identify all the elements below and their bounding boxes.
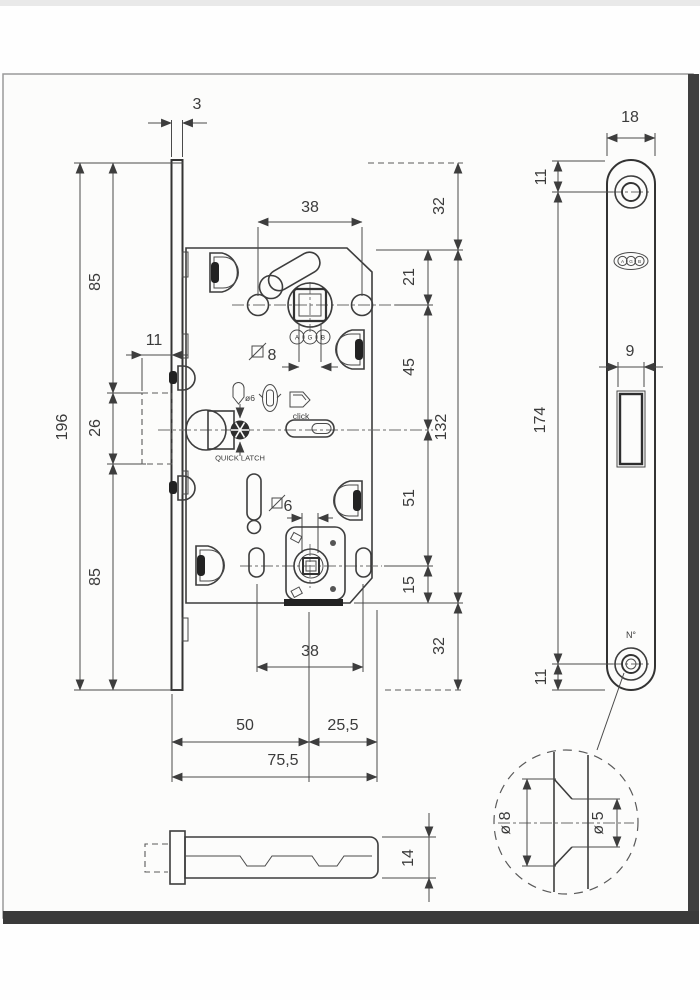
dim-label-38-top: 38	[301, 199, 319, 216]
dim-label-38-bottom: 38	[301, 643, 319, 660]
detail-circle	[494, 750, 638, 894]
dim-label-square6: 6	[284, 498, 293, 515]
scan-shadow-right	[688, 74, 699, 920]
faceplate-side	[607, 160, 655, 690]
dim-label-15: 15	[401, 576, 418, 594]
dim-label-26: 26	[87, 419, 104, 437]
dim-label-45: 45	[401, 358, 418, 376]
dim-label-50: 50	[236, 717, 254, 734]
brand-letter: A	[295, 336, 299, 342]
brand-letter: G	[629, 259, 633, 264]
brand-letter: G	[308, 336, 313, 342]
pin-dia-label: ø6	[245, 393, 255, 403]
brand-letter: B	[638, 259, 641, 264]
drawing-canvas: 3	[0, 0, 700, 1000]
dim-label-dia8: ø 8	[497, 811, 514, 834]
brand-letter: B	[321, 336, 325, 342]
dim-label-11-top: 11	[533, 169, 550, 186]
dim-label-14: 14	[400, 849, 417, 867]
dim-label-85-top: 85	[87, 273, 104, 291]
dim-label-85-bottom: 85	[87, 568, 104, 586]
dim-label-32-bottom: 32	[431, 637, 448, 655]
dim-label-32-top: 32	[431, 197, 448, 215]
magnet-bolt-edge	[284, 599, 343, 606]
dim-label-25-5: 25,5	[327, 717, 358, 734]
scan-shadow-bottom	[3, 911, 699, 924]
dim-label-11-left: 11	[146, 332, 163, 349]
dim-label-square8: 8	[268, 347, 277, 364]
dim-label-21: 21	[401, 268, 418, 286]
dim-label-18: 18	[621, 109, 639, 126]
detail-view: ø 8 ø 5	[494, 750, 638, 894]
dim-label-174: 174	[532, 407, 549, 434]
dim-label-196: 196	[54, 414, 71, 441]
scanned-technical-drawing: 3	[0, 0, 700, 1000]
dim-label-3: 3	[193, 96, 202, 113]
dim-label-51: 51	[401, 489, 418, 507]
dim-label-dia5: ø 5	[590, 811, 607, 834]
quick-latch-label: QUICK LATCH	[215, 454, 265, 463]
scan-top-strip	[0, 0, 700, 6]
hole-note-label: N°	[626, 630, 636, 640]
faceplate-front	[172, 160, 183, 690]
quick-latch-screw	[231, 421, 250, 440]
dim-label-75-5: 75,5	[267, 752, 298, 769]
dim-label-9: 9	[626, 343, 635, 360]
dim-label-11-bottom: 11	[533, 669, 550, 686]
dim-label-132: 132	[433, 414, 450, 441]
